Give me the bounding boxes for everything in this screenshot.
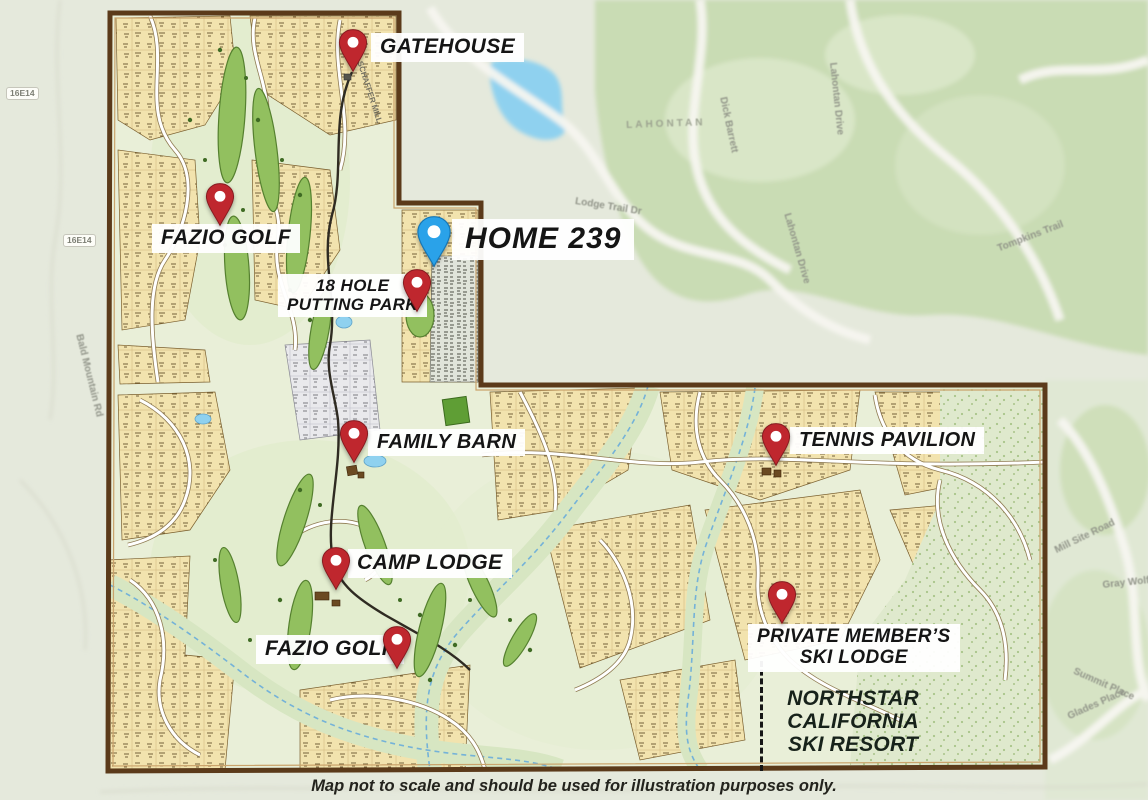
family-barn-label: FAMILY BARN: [368, 429, 525, 456]
home-239-pin-icon[interactable]: [414, 215, 455, 268]
gatehouse-pin-icon[interactable]: [337, 28, 370, 73]
fazio-golf-north-pin-icon[interactable]: [204, 182, 237, 227]
fazio-golf-south-pin-icon[interactable]: [381, 625, 414, 670]
home-239-label: HOME 239: [452, 219, 634, 260]
camp-lodge-label: CAMP LODGE: [348, 549, 512, 578]
sports-field: [442, 396, 469, 425]
resort-boundary-dashed-line: [760, 661, 763, 771]
trail-badge-16e14-b: 16E14: [63, 234, 96, 247]
fazio-golf-north-label: FAZIO GOLF: [152, 224, 300, 253]
map-artwork: [0, 0, 1148, 800]
family-barn-pin-icon[interactable]: [338, 419, 371, 464]
gatehouse-label: GATEHOUSE: [371, 33, 524, 62]
ski-lodge-label-line1: PRIVATE MEMBER’S: [757, 626, 951, 647]
tennis-pavilion-label: TENNIS PAVILION: [790, 427, 984, 454]
ski-lodge-pin-icon[interactable]: [766, 580, 799, 625]
putting-park-label-line2: PUTTING PARK: [287, 295, 418, 314]
trail-badge-16e14-a: 16E14: [6, 87, 39, 100]
northstar-line3: SKI RESORT: [780, 733, 926, 756]
northstar-line2: CALIFORNIA: [780, 710, 926, 733]
community-map: LAHONTAN Bald Mountain Rd Lodge Trail Dr…: [0, 0, 1148, 800]
northstar-line1: NORTHSTAR: [780, 687, 926, 710]
camp-lodge-pin-icon[interactable]: [320, 546, 353, 591]
tennis-pavilion-pin-icon[interactable]: [760, 422, 793, 467]
map-disclaimer: Map not to scale and should be used for …: [0, 777, 1148, 796]
putting-park-pin-icon[interactable]: [401, 268, 434, 313]
village-cluster: [430, 256, 478, 382]
putting-park-label-line1: 18 HOLE: [287, 276, 418, 295]
northstar-resort-label: NORTHSTAR CALIFORNIA SKI RESORT: [780, 687, 926, 756]
ski-lodge-label: PRIVATE MEMBER’S SKI LODGE: [748, 624, 960, 672]
ski-lodge-label-line2: SKI LODGE: [757, 647, 951, 668]
